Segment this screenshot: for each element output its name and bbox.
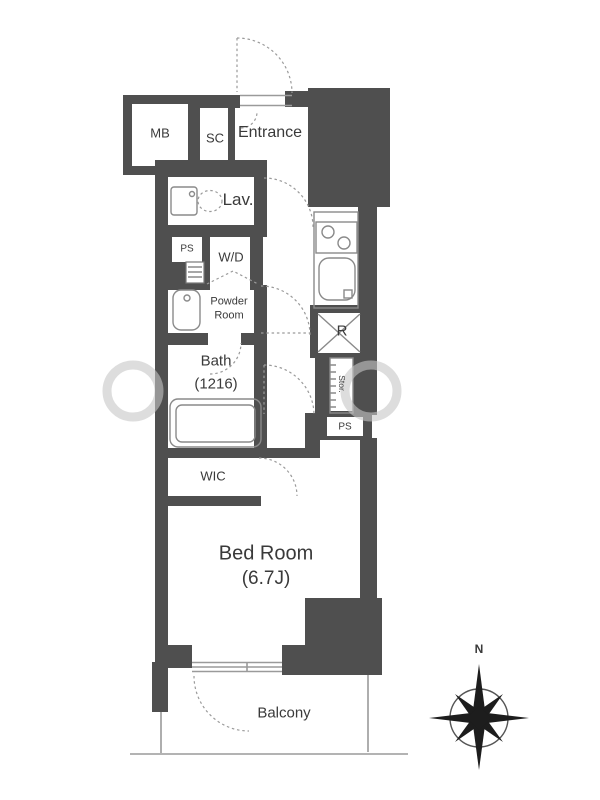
label-lav: Lav. — [223, 190, 254, 210]
label-wic: WIC — [200, 470, 225, 485]
wall-right-mid — [367, 305, 377, 360]
wall-storage-left — [315, 355, 330, 415]
floor-plan-canvas: MB SC Entrance Lav. PS W/D Powder Room B… — [0, 0, 600, 800]
washbasin-faucet — [184, 295, 190, 301]
powder-room-door-arc — [261, 286, 310, 335]
label-wd: W/D — [218, 251, 243, 266]
kitchen — [314, 212, 358, 308]
label-ps-upper: PS — [180, 243, 193, 255]
wall-wd-right — [250, 232, 263, 290]
stove — [316, 222, 357, 253]
label-mb: MB — [150, 127, 170, 142]
compass-rose — [429, 664, 529, 770]
wic-door-arc — [259, 458, 297, 496]
wall-left-step — [167, 645, 192, 668]
washbasin-bowl — [173, 290, 200, 330]
entrance-door-arc — [237, 38, 292, 93]
label-powder-line2: Room — [214, 310, 243, 323]
wall-lav-right — [254, 170, 267, 230]
toilet — [171, 187, 222, 215]
wall-kitchen-right — [358, 207, 377, 310]
label-ps-lower: PS — [338, 421, 351, 433]
wall-right-low — [360, 438, 377, 600]
label-powder-line1: Powder — [210, 296, 247, 309]
wall-block-bottom-right-a — [305, 598, 382, 645]
label-balcony: Balcony — [257, 704, 310, 721]
label-storage: Stor. — [336, 375, 346, 392]
balcony-door-arc — [194, 676, 249, 731]
wall-bath-bottom — [155, 448, 318, 458]
bathtub — [170, 399, 261, 447]
washbasin — [173, 290, 200, 330]
label-bedroom-name: Bed Room — [219, 543, 314, 566]
bathtub-outer — [170, 399, 261, 447]
bathtub-inner — [176, 405, 255, 442]
wall-block-top-right — [308, 88, 390, 207]
floor-plan-drawing — [0, 0, 600, 800]
label-sc: SC — [206, 132, 224, 147]
water-heater — [186, 262, 204, 283]
wall-powder-bottom-left — [155, 333, 208, 345]
label-bath-size: (1216) — [194, 375, 237, 392]
label-bedroom-size: (6.7J) — [242, 568, 291, 590]
wall-band-below-sc — [155, 160, 267, 177]
wall-wic-bottom — [155, 496, 261, 506]
lav-door-arc — [264, 178, 313, 227]
watermark-ring-left — [107, 365, 159, 417]
entrance-door-opening-lines — [240, 96, 292, 106]
toilet-flush-button — [190, 192, 195, 197]
label-bath-name: Bath — [201, 352, 232, 369]
label-entrance: Entrance — [238, 124, 302, 142]
wall-left-main — [155, 167, 168, 662]
wall-block-bottom-right-b — [282, 645, 382, 675]
stove-burner-1 — [322, 226, 334, 238]
toilet-bowl — [198, 191, 222, 212]
label-compass-north: N — [475, 643, 484, 657]
wall-sc-entrance-divider — [228, 95, 235, 167]
wall-left-column — [152, 662, 168, 712]
storage-shelf-ticks — [330, 365, 336, 407]
bedroom-door-arc — [264, 365, 314, 415]
sink-drain — [344, 290, 352, 298]
wall-bedroom-door-chunk — [305, 413, 320, 458]
stove-burner-2 — [338, 237, 350, 249]
label-refrigerator: R — [337, 322, 348, 339]
kitchen-sink — [319, 258, 355, 300]
bedroom-window — [192, 662, 282, 672]
